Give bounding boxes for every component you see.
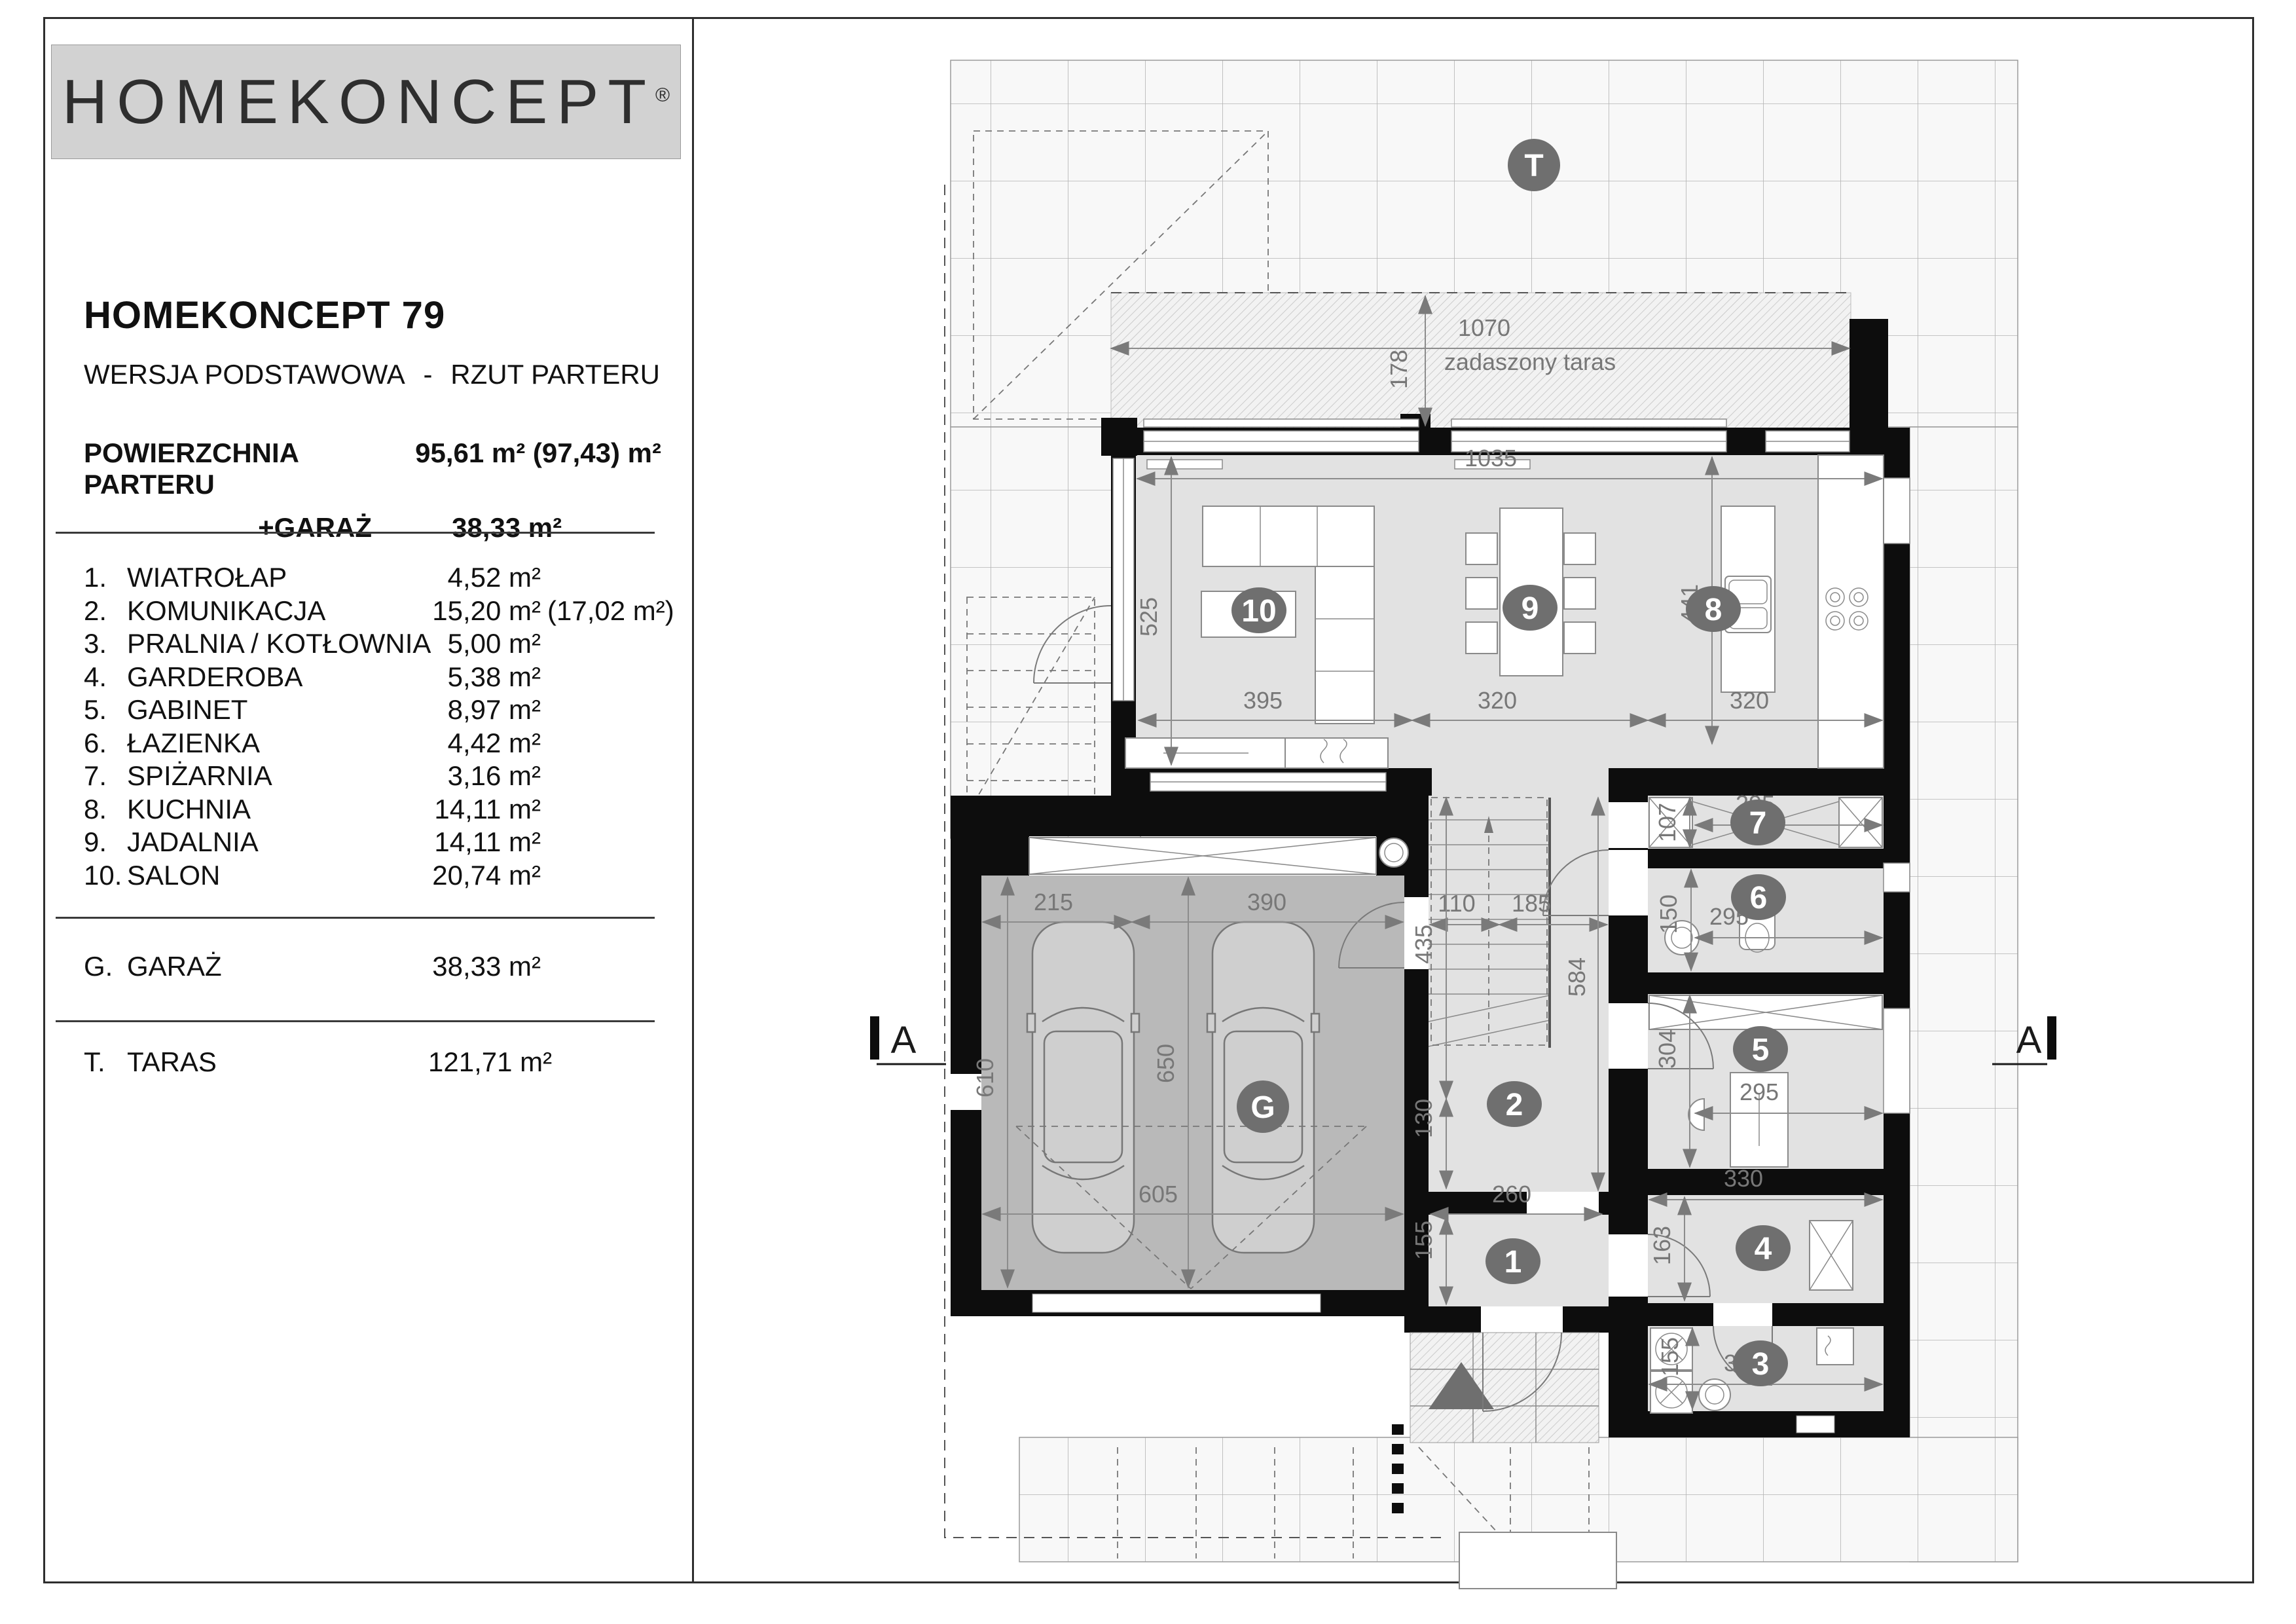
front-door-gap xyxy=(1481,1306,1563,1333)
wall-right xyxy=(1884,428,1910,1437)
dimension-label: 185 xyxy=(1512,890,1551,917)
door-hall-1-gap xyxy=(1527,1192,1599,1215)
room-marker-label: 6 xyxy=(1750,881,1768,915)
room-list-item: 3.PRALNIA / KOTŁOWNIA5,00 m² xyxy=(84,628,674,661)
room-number: 8. xyxy=(84,794,127,825)
summary-label: POWIERZCHNIA PARTERU xyxy=(84,437,335,500)
room-list: 1.WIATROŁAP4,52 m²2.KOMUNIKACJA15,20 m²(… xyxy=(84,562,674,893)
logo: HOMEKONCEPT® xyxy=(62,66,670,138)
garage-row: G. GARAŻ 38,33 m² xyxy=(84,951,541,982)
room-name: GARDEROBA xyxy=(127,661,428,693)
dimension-label: 395 xyxy=(1243,687,1283,714)
window-office xyxy=(1884,1008,1910,1113)
room-list-item: 4.GARDEROBA5,38 m² xyxy=(84,661,674,695)
summary-value: 95,61 m² (97,43) m² xyxy=(415,437,661,500)
dimension-label: 320 xyxy=(1730,687,1769,714)
room-area: 14,11 m² xyxy=(428,826,541,858)
boiler xyxy=(1817,1328,1853,1365)
dimension-label: 260 xyxy=(1492,1181,1531,1208)
divider-line xyxy=(56,917,655,919)
terrace-marker-label: T xyxy=(1524,149,1543,183)
dryer xyxy=(1650,1371,1692,1413)
garage-no: G. xyxy=(84,951,127,982)
dimension-label: 178 xyxy=(1385,350,1412,389)
room-name: KOMUNIKACJA xyxy=(127,595,428,627)
terrace-name: TARAS xyxy=(127,1046,428,1078)
room-area: 8,97 m² xyxy=(428,694,541,726)
section-bar-right xyxy=(2047,1016,2056,1060)
room-number: 10. xyxy=(84,860,127,891)
dimension-label: 155 xyxy=(1410,1221,1437,1260)
project-title: HOMEKONCEPT 79 xyxy=(84,293,445,337)
summary-label: +GARAŻ xyxy=(84,512,372,544)
room-name: PRALNIA / KOTŁOWNIA xyxy=(127,628,428,659)
dimension-label: 1035 xyxy=(1465,445,1517,471)
room-number: 7. xyxy=(84,760,127,792)
room-area: 5,00 m² xyxy=(428,628,541,659)
entry-landing xyxy=(1459,1532,1616,1589)
room-marker-label: 3 xyxy=(1752,1347,1770,1382)
room-list-item: 6.ŁAZIENKA4,42 m² xyxy=(84,728,674,761)
room-number: 6. xyxy=(84,728,127,759)
dimension-label: 107 xyxy=(1654,803,1681,842)
dimension-label: 295 xyxy=(1740,1079,1779,1105)
garage-name: GARAŻ xyxy=(127,951,428,982)
dimension-label: 163 xyxy=(1649,1226,1675,1265)
floor-plan: A A zadaszony taras 10701781035525441395… xyxy=(836,26,2296,1611)
chair xyxy=(1564,533,1595,564)
divider-line xyxy=(56,1020,655,1022)
room-number: 2. xyxy=(84,595,127,627)
room-marker-label: 2 xyxy=(1506,1088,1523,1122)
registered-mark: ® xyxy=(655,84,670,106)
room-area: 14,11 m² xyxy=(428,794,541,825)
sofa xyxy=(1203,506,1374,566)
room-marker-label: 9 xyxy=(1522,591,1539,626)
room-area: 4,52 m² xyxy=(428,562,541,593)
wall-6-5 xyxy=(1648,972,1884,994)
room-list-item: 1.WIATROŁAP4,52 m² xyxy=(84,562,674,595)
area-summary: POWIERZCHNIA PARTERU 95,61 m² (97,43) m²… xyxy=(84,437,661,555)
room-marker-label: 7 xyxy=(1749,806,1767,841)
dimension-label: 650 xyxy=(1152,1044,1179,1083)
divider-line xyxy=(56,532,655,534)
room-list-item: 7.SPIŻARNIA3,16 m² xyxy=(84,760,674,794)
kitchen-counter xyxy=(1818,455,1884,768)
room-number: 1. xyxy=(84,562,127,593)
chair xyxy=(1466,533,1497,564)
room-area: 3,16 m² xyxy=(428,760,541,792)
wall-wing-bottom xyxy=(1609,1411,1910,1437)
terrace-column-corner xyxy=(1850,319,1888,430)
room-area: 20,74 m² xyxy=(428,860,541,891)
room-name: WIATROŁAP xyxy=(127,562,428,593)
room-list-item: 10.SALON20,74 m² xyxy=(84,860,674,893)
version-label: WERSJA PODSTAWOWA xyxy=(84,359,405,390)
wall-5-4 xyxy=(1648,1169,1884,1195)
car xyxy=(1027,922,1139,1253)
room-marker-label: 8 xyxy=(1705,593,1722,627)
drawing-label: RZUT PARTERU xyxy=(450,359,660,390)
dimension-label: 605 xyxy=(1139,1181,1178,1208)
garage-area: 38,33 m² xyxy=(428,951,541,982)
room-list-item: 9.JADALNIA14,11 m² xyxy=(84,826,674,860)
version-row: WERSJA PODSTAWOWA - RZUT PARTERU xyxy=(84,359,660,390)
dimension-label: 155 xyxy=(1656,1337,1683,1376)
garage-shelf xyxy=(1029,838,1408,874)
room-area: 5,38 m² xyxy=(428,661,541,693)
chair xyxy=(1466,622,1497,654)
room-name: KUCHNIA xyxy=(127,794,428,825)
wall-7-6 xyxy=(1648,849,1884,868)
dimension-label: 525 xyxy=(1135,597,1162,637)
room-name: JADALNIA xyxy=(127,826,428,858)
dimension-label: 150 xyxy=(1655,895,1682,934)
dimension-label: 584 xyxy=(1563,957,1590,997)
room-number: 4. xyxy=(84,661,127,693)
window-utility xyxy=(1796,1416,1834,1433)
room-number: 3. xyxy=(84,628,127,659)
room-marker-label: 10 xyxy=(1241,594,1276,629)
dimension-label: 130 xyxy=(1410,1099,1437,1138)
section-letter-left: A xyxy=(891,1019,917,1061)
room-list-item: 8.KUCHNIA14,11 m² xyxy=(84,794,674,827)
dimension-label: 390 xyxy=(1247,889,1286,915)
porch-hatch xyxy=(1410,1333,1599,1443)
garage-door xyxy=(1032,1294,1321,1312)
room-marker-label: 4 xyxy=(1755,1232,1772,1266)
room-name: GABINET xyxy=(127,694,428,726)
chair xyxy=(1564,578,1595,609)
wall-garage-top xyxy=(951,796,1429,836)
room-marker-label: 5 xyxy=(1752,1033,1770,1067)
chair xyxy=(1564,622,1595,654)
room-number: 9. xyxy=(84,826,127,858)
window-kitchen-right xyxy=(1884,478,1910,544)
room-number: 5. xyxy=(84,694,127,726)
dimension-label: 110 xyxy=(1438,890,1475,917)
dimension-label: 435 xyxy=(1410,925,1437,964)
dimension-label: 1070 xyxy=(1458,314,1510,341)
fireplace xyxy=(1285,738,1388,768)
room-name: SPIŻARNIA xyxy=(127,760,428,792)
room-name: SALON xyxy=(127,860,428,891)
panel-divider xyxy=(692,17,694,1583)
room-list-item: 5.GABINET8,97 m² xyxy=(84,694,674,728)
garage-marker-label: G xyxy=(1250,1090,1275,1125)
wardrobe-4 xyxy=(1810,1221,1853,1290)
chair xyxy=(1466,578,1497,609)
door-office-gap xyxy=(1609,1003,1648,1069)
room-name: ŁAZIENKA xyxy=(127,728,428,759)
dimension-label: 320 xyxy=(1478,687,1517,714)
door-4-3-gap xyxy=(1713,1303,1772,1326)
terrace-no: T. xyxy=(84,1046,127,1078)
room-list-item: 2.KOMUNIKACJA15,20 m²(17,02 m²) xyxy=(84,595,674,629)
covered-terrace-label: zadaszony taras xyxy=(1444,348,1616,375)
version-separator: - xyxy=(424,359,433,390)
section-bar-left xyxy=(870,1016,879,1060)
terrace-row: T. TARAS 121,71 m² xyxy=(84,1046,541,1078)
room-marker-label: 1 xyxy=(1504,1245,1522,1280)
dimension-label: 215 xyxy=(1034,889,1073,915)
section-letter-right: A xyxy=(2016,1019,2042,1061)
room-area: 4,42 m² xyxy=(428,728,541,759)
door-bath-gap xyxy=(1609,850,1648,915)
door-wardrobe-gap xyxy=(1609,1234,1648,1297)
terrace-tiles-right xyxy=(1910,427,2018,1562)
chimney xyxy=(1379,838,1408,867)
door-pantry-gap xyxy=(1609,802,1648,848)
dimension-label: 304 xyxy=(1654,1029,1681,1069)
window-bath xyxy=(1884,863,1910,892)
dimension-label: 610 xyxy=(972,1058,998,1098)
logo-box: HOMEKONCEPT® xyxy=(51,45,681,159)
sofa-chaise xyxy=(1315,566,1374,724)
room-area: 15,20 m² xyxy=(428,595,541,627)
hall-floor xyxy=(1429,768,1609,1306)
room-area-gross: (17,02 m²) xyxy=(547,595,674,627)
dimension-label: 330 xyxy=(1724,1165,1763,1192)
built-in-wardrobe xyxy=(1649,995,1882,1029)
terrace-area: 121,71 m² xyxy=(428,1046,541,1078)
summary-value: 38,33 m² xyxy=(452,512,562,544)
